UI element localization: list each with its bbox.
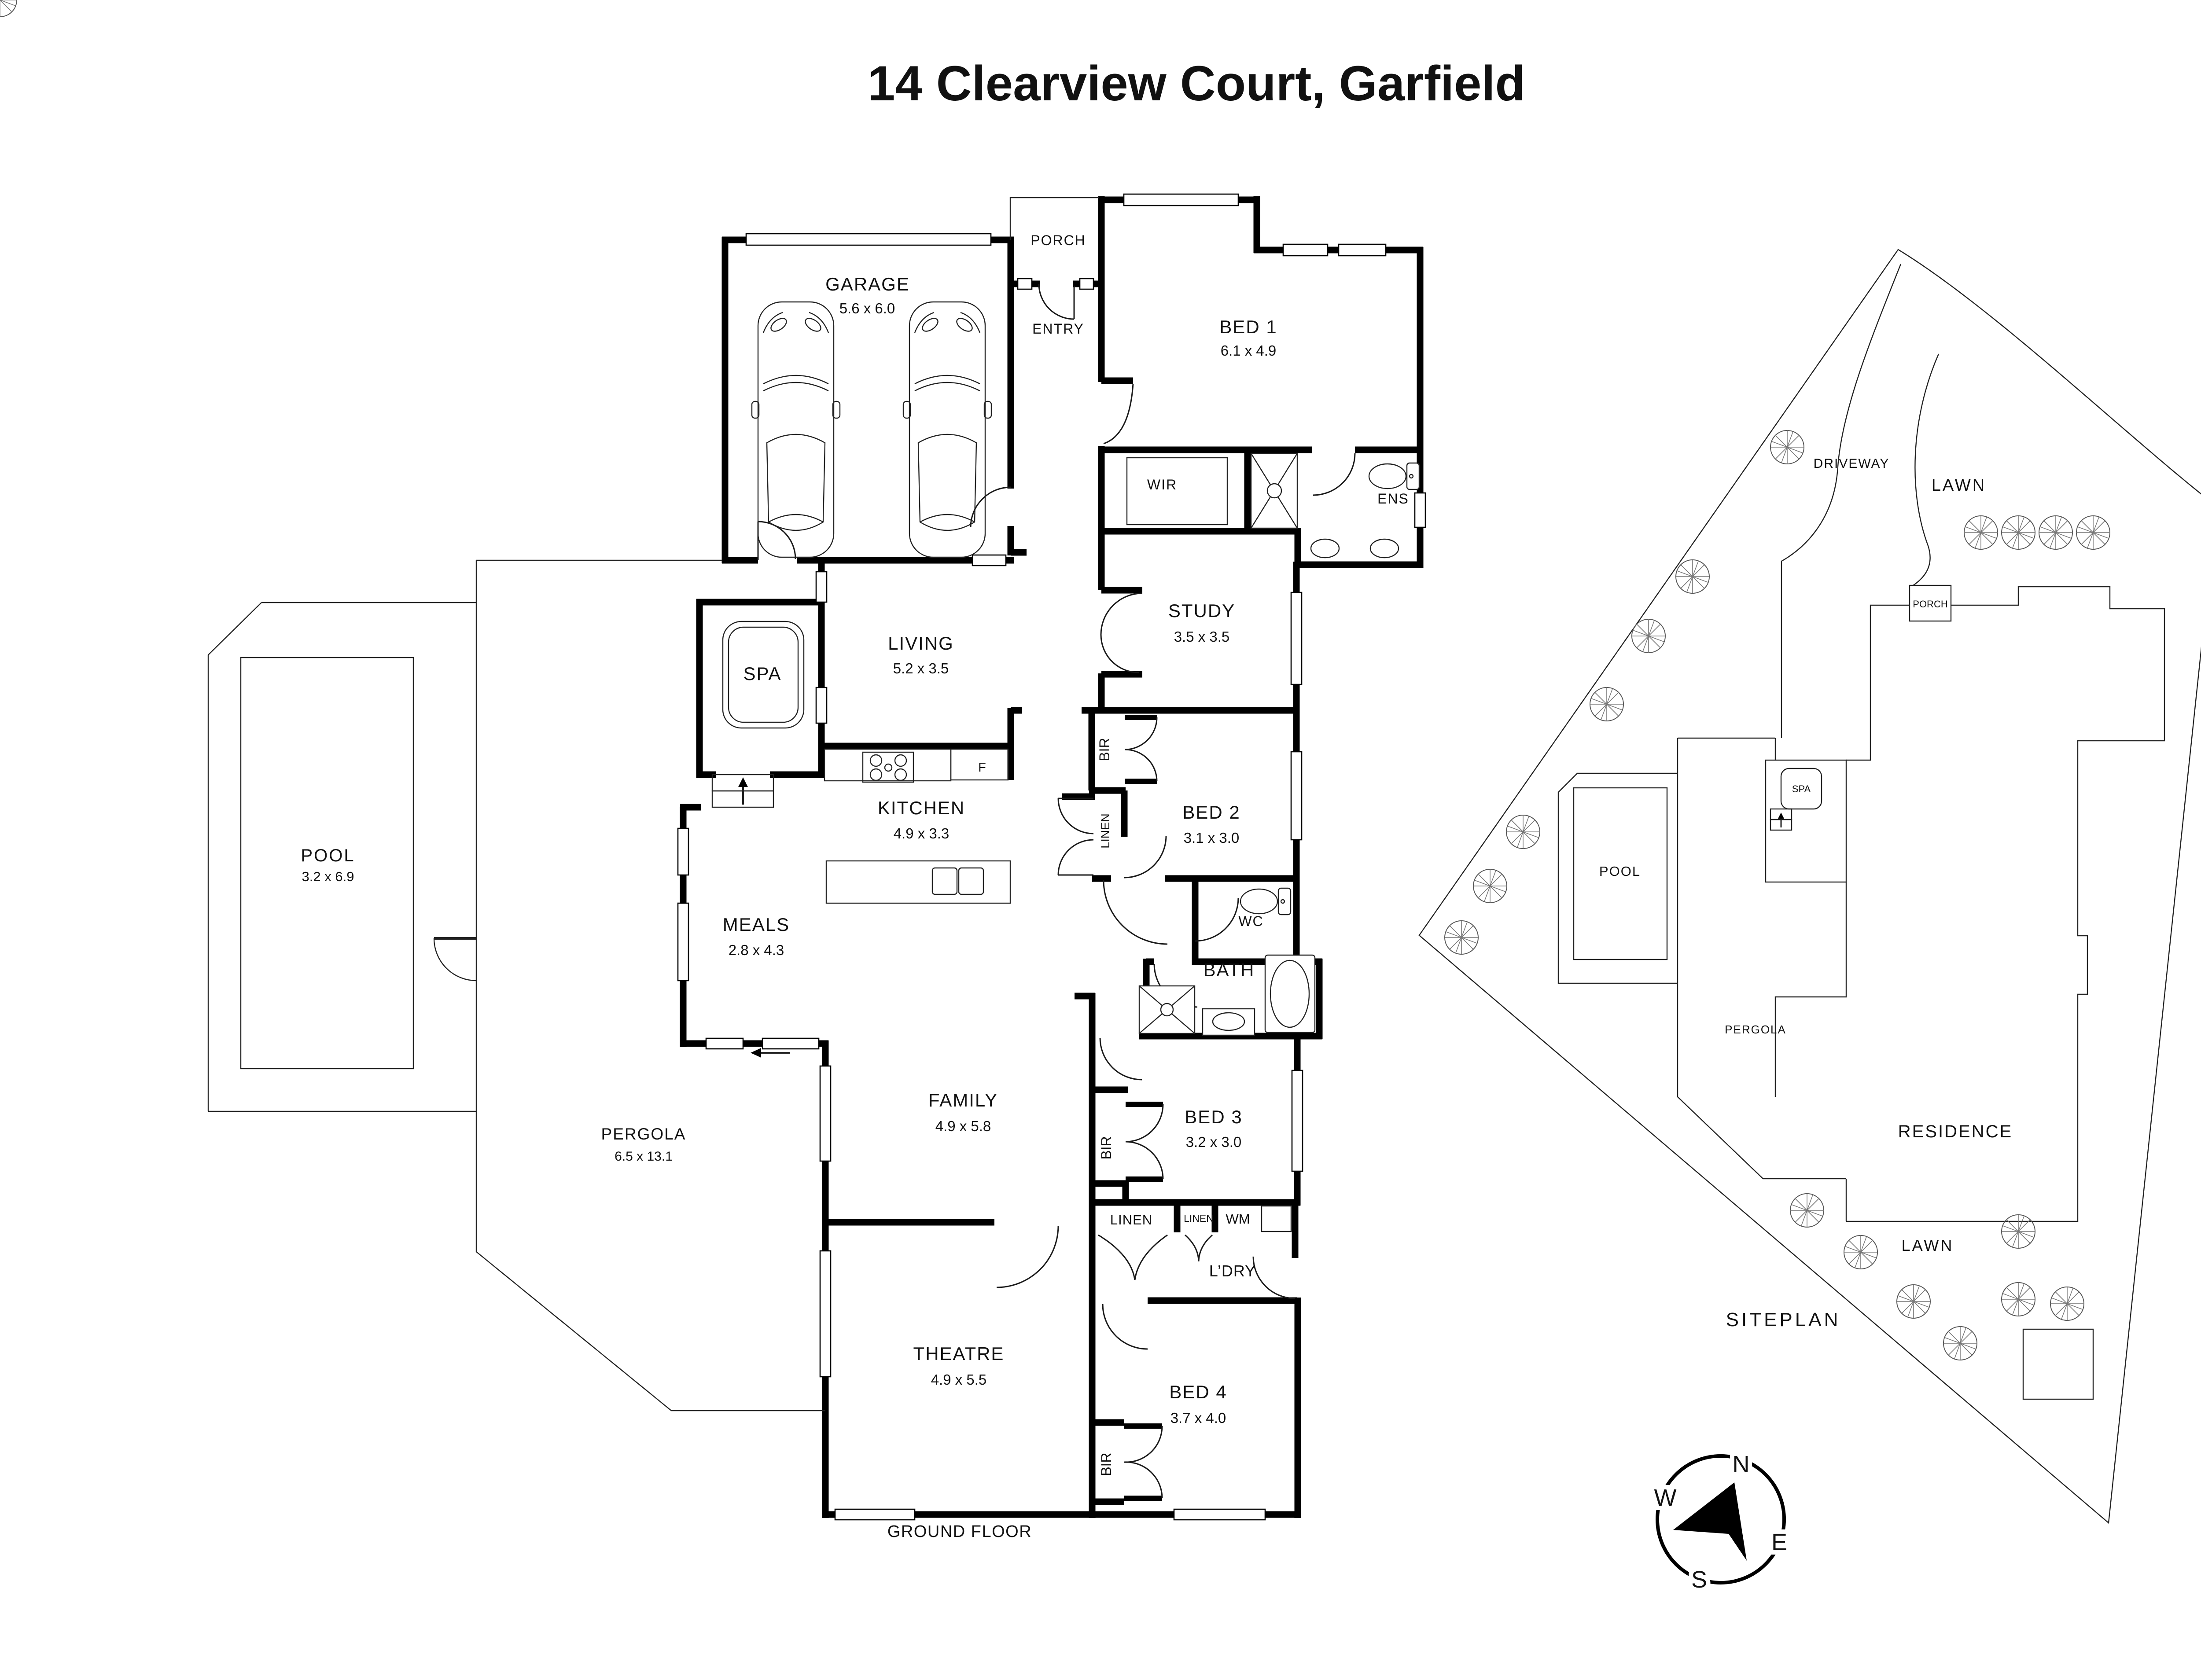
svg-text:4.9 x 3.3: 4.9 x 3.3 [894,825,950,842]
svg-text:PORCH: PORCH [1031,232,1086,248]
svg-text:BIR: BIR [1098,1136,1114,1159]
svg-text:5.6 x 6.0: 5.6 x 6.0 [839,300,895,316]
svg-text:KITCHEN: KITCHEN [878,798,965,818]
svg-text:BED 4: BED 4 [1169,1382,1227,1402]
svg-text:MEALS: MEALS [723,914,790,935]
svg-text:3.1 x 3.0: 3.1 x 3.0 [1184,830,1240,846]
svg-text:LINEN: LINEN [1099,813,1112,849]
svg-text:4.9 x 5.8: 4.9 x 5.8 [935,1118,991,1134]
svg-text:POOL: POOL [1599,864,1641,879]
svg-text:2.8 x 4.3: 2.8 x 4.3 [729,942,784,958]
svg-text:ENTRY: ENTRY [1032,321,1084,337]
svg-text:THEATRE: THEATRE [913,1343,1005,1364]
svg-text:L’DRY: L’DRY [1209,1262,1256,1280]
svg-text:PERGOLA: PERGOLA [1725,1023,1786,1036]
svg-text:6.1 x 4.9: 6.1 x 4.9 [1221,342,1277,359]
svg-text:LAWN: LAWN [1902,1236,1954,1254]
svg-text:WC: WC [1238,913,1263,929]
svg-text:WIR: WIR [1147,477,1177,493]
svg-text:LINEN: LINEN [1110,1212,1152,1228]
svg-text:14 Clearview Court, Garfield: 14 Clearview Court, Garfield [868,56,1525,111]
svg-text:SPA: SPA [743,663,782,684]
svg-text:LAWN: LAWN [1932,476,1986,495]
svg-text:BIR: BIR [1098,1452,1114,1476]
svg-text:SPA: SPA [1792,783,1811,794]
svg-text:4.9 x 5.5: 4.9 x 5.5 [931,1371,987,1388]
svg-text:F: F [978,761,986,775]
svg-text:ENS: ENS [1377,491,1409,507]
svg-text:LIVING: LIVING [888,633,954,654]
svg-text:FAMILY: FAMILY [928,1090,998,1110]
svg-text:BED 1: BED 1 [1219,316,1277,337]
svg-text:S: S [1691,1566,1707,1593]
svg-text:BATH: BATH [1204,959,1255,980]
svg-text:GROUND FLOOR: GROUND FLOOR [887,1522,1032,1541]
svg-text:BED 2: BED 2 [1182,802,1240,823]
svg-text:3.2 x 6.9: 3.2 x 6.9 [302,869,354,884]
svg-text:WM: WM [1226,1211,1250,1227]
svg-text:E: E [1771,1529,1787,1555]
svg-text:DRIVEWAY: DRIVEWAY [1814,456,1890,471]
svg-text:STUDY: STUDY [1168,600,1235,621]
svg-text:POOL: POOL [301,846,355,865]
svg-text:GARAGE: GARAGE [825,274,910,294]
svg-text:BED 3: BED 3 [1185,1107,1242,1127]
svg-text:SITEPLAN: SITEPLAN [1726,1309,1841,1331]
svg-text:N: N [1733,1451,1750,1478]
svg-text:3.2 x 3.0: 3.2 x 3.0 [1186,1134,1242,1150]
svg-text:3.5 x 3.5: 3.5 x 3.5 [1174,629,1230,645]
svg-text:RESIDENCE: RESIDENCE [1898,1122,2013,1141]
svg-text:PERGOLA: PERGOLA [601,1125,686,1143]
svg-text:6.5 x 13.1: 6.5 x 13.1 [615,1149,673,1164]
svg-text:3.7 x 4.0: 3.7 x 4.0 [1170,1410,1226,1426]
svg-text:5.2 x 3.5: 5.2 x 3.5 [893,660,949,676]
svg-text:PORCH: PORCH [1913,599,1947,610]
svg-text:LINEN: LINEN [1184,1213,1214,1224]
svg-text:W: W [1654,1485,1677,1511]
svg-text:BIR: BIR [1097,738,1112,761]
